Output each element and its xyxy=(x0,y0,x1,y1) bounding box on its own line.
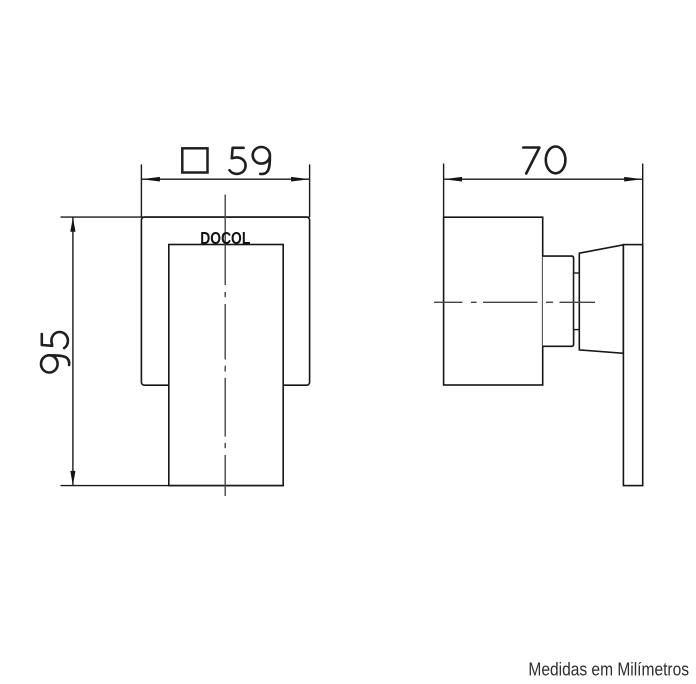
svg-text:DOCOL: DOCOL xyxy=(200,228,250,248)
svg-text:Medidas em Milímetros: Medidas em Milímetros xyxy=(528,659,689,680)
